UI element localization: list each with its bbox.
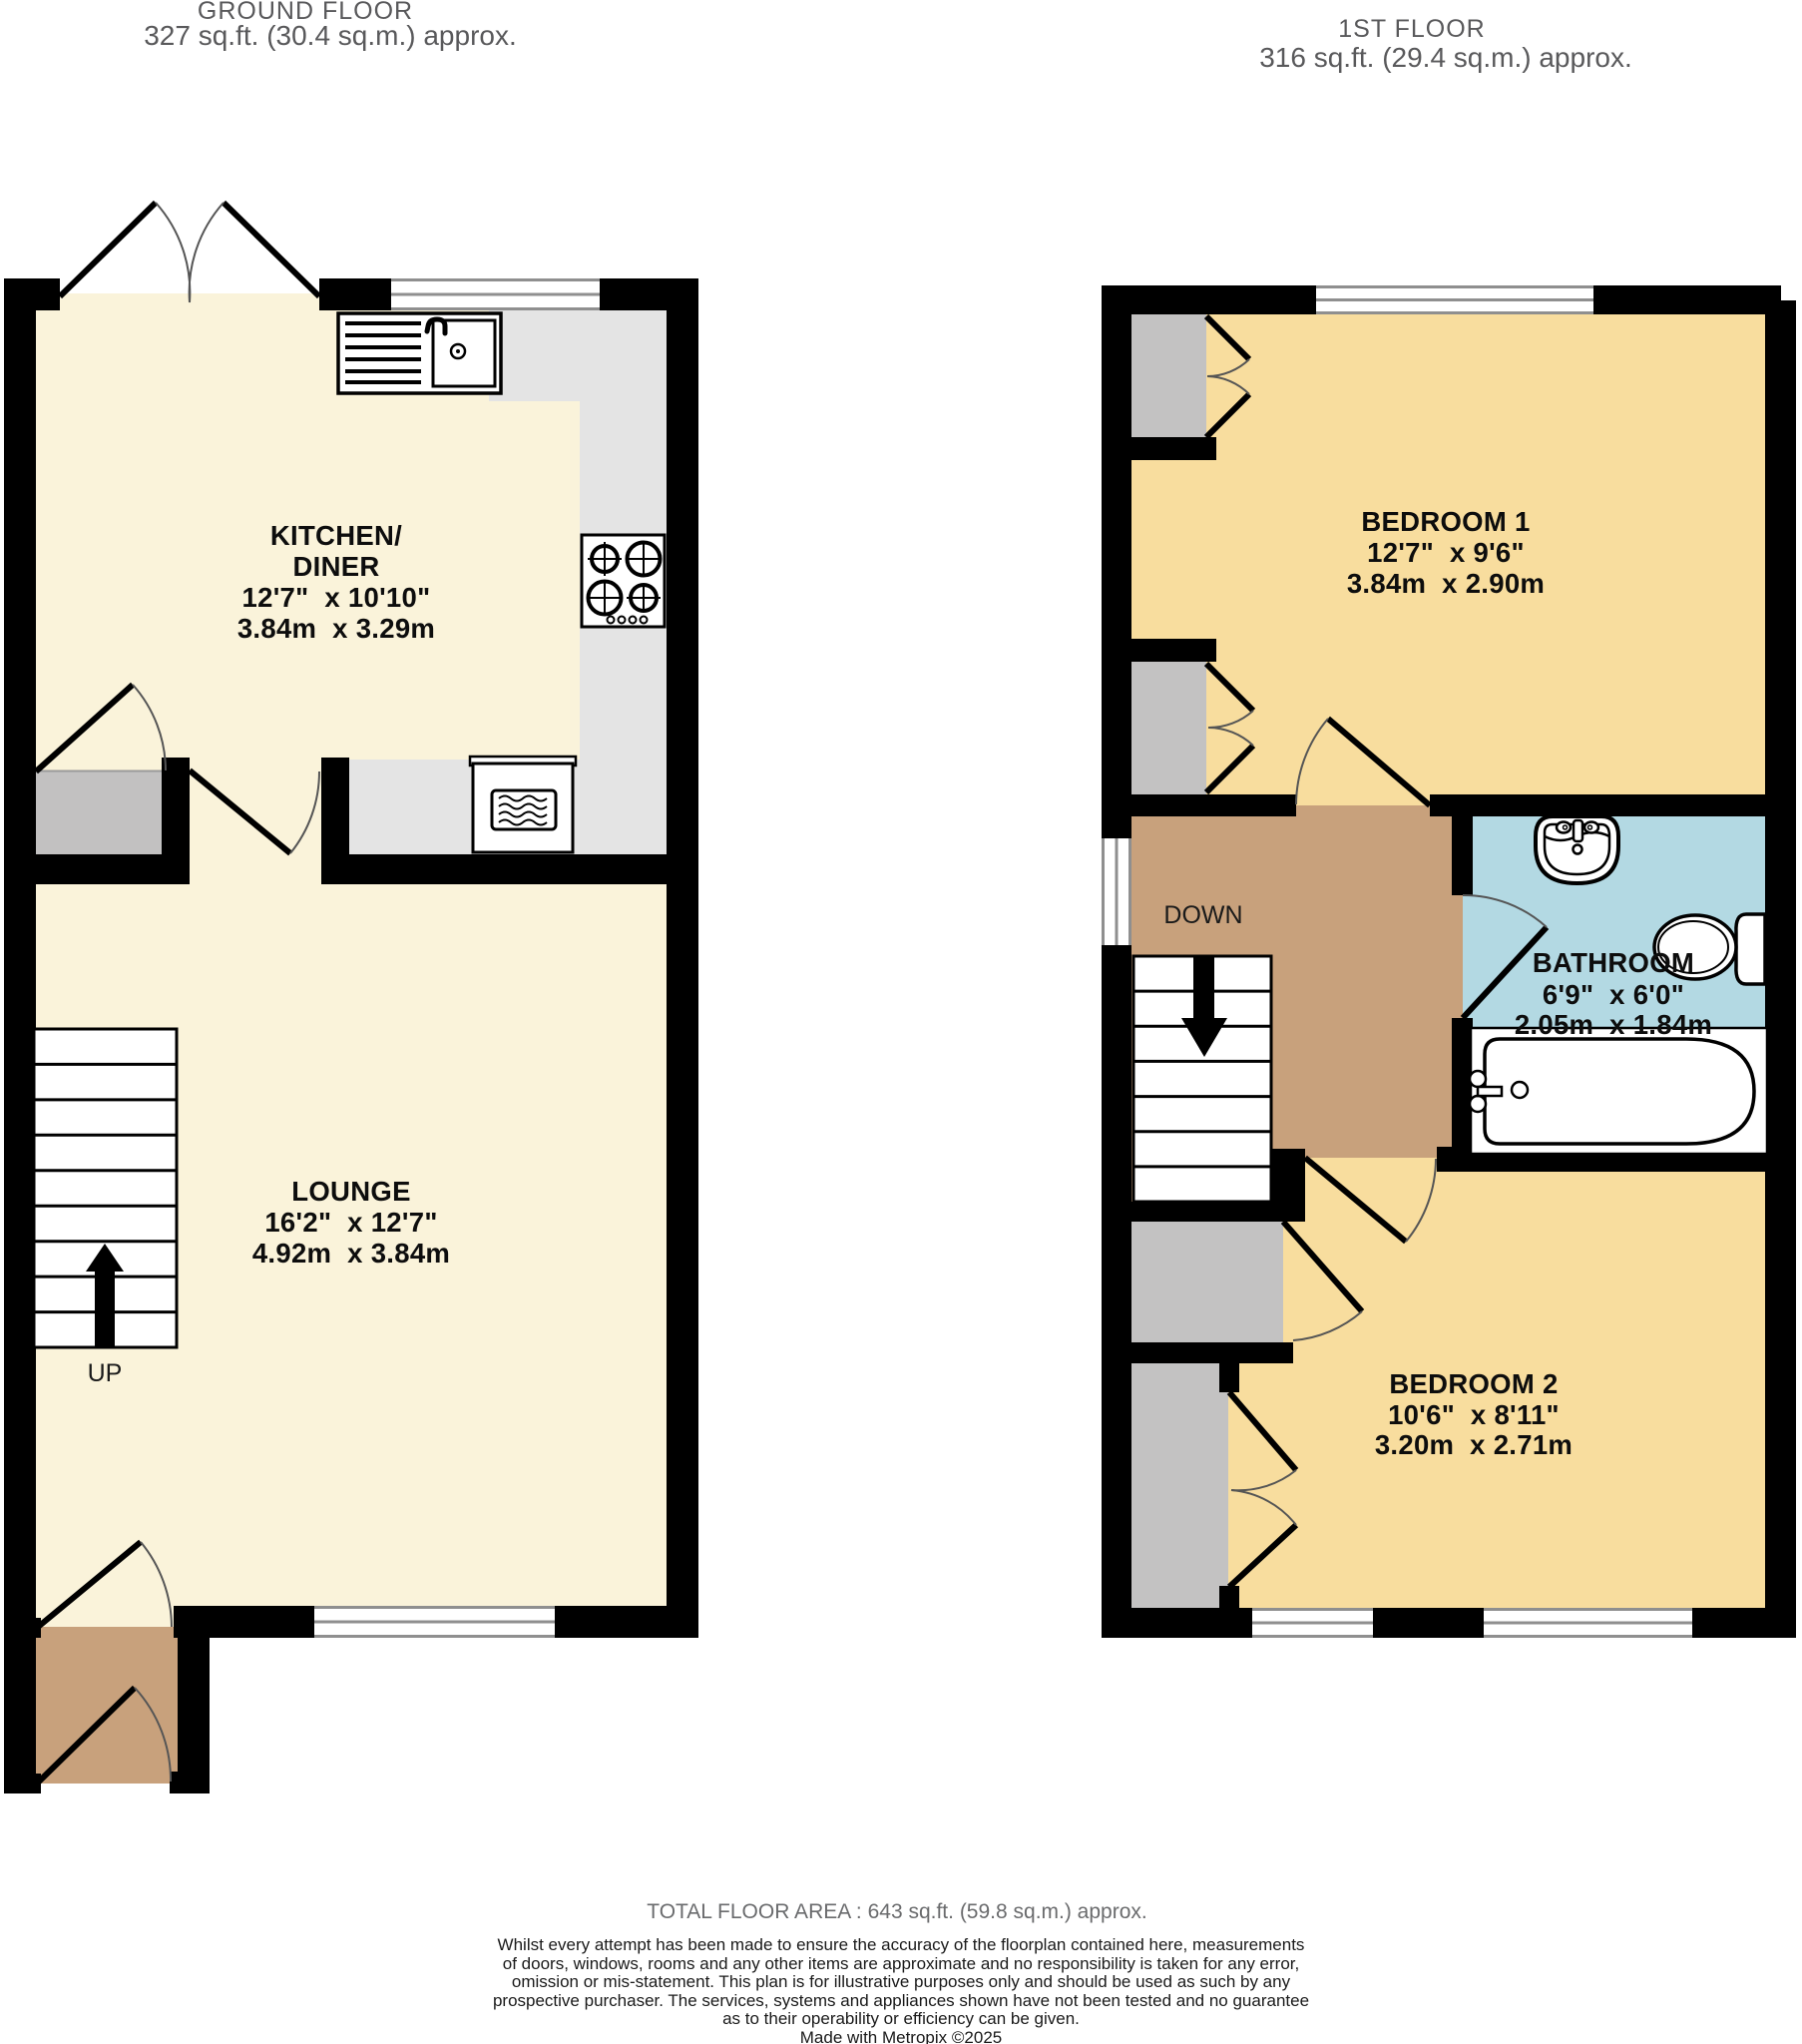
svg-text:UP: UP — [88, 1359, 123, 1387]
svg-text:omission or mis-statement. Thi: omission or mis-statement. This plan is … — [512, 1972, 1291, 1991]
svg-text:Whilst every attempt has been: Whilst every attempt has been made to en… — [498, 1935, 1305, 1954]
svg-text:BATHROOM: BATHROOM — [1533, 947, 1694, 978]
svg-text:12'7" x 9'6": 12'7" x 9'6" — [1367, 537, 1525, 568]
svg-text:4.92m x 3.84m: 4.92m x 3.84m — [252, 1238, 450, 1269]
svg-text:3.84m x 3.29m: 3.84m x 3.29m — [237, 613, 435, 644]
svg-text:DINER: DINER — [292, 551, 379, 582]
svg-text:prospective purchaser. The ser: prospective purchaser. The services, sys… — [493, 1991, 1309, 2010]
svg-text:3.84m x 2.90m: 3.84m x 2.90m — [1347, 568, 1545, 599]
svg-text:of doors, windows, rooms and a: of doors, windows, rooms and any other i… — [503, 1954, 1299, 1973]
svg-text:316 sq.ft. (29.4 sq.m.) approx: 316 sq.ft. (29.4 sq.m.) approx. — [1259, 42, 1632, 73]
svg-text:10'6" x 8'11": 10'6" x 8'11" — [1388, 1399, 1560, 1430]
svg-text:KITCHEN/: KITCHEN/ — [270, 520, 402, 551]
svg-text:1ST FLOOR: 1ST FLOOR — [1338, 15, 1485, 43]
svg-text:12'7" x 10'10": 12'7" x 10'10" — [242, 582, 431, 613]
svg-text:TOTAL FLOOR AREA : 643 sq.ft.: TOTAL FLOOR AREA : 643 sq.ft. (59.8 sq.m… — [647, 1900, 1146, 1923]
svg-text:2.05m x 1.84m: 2.05m x 1.84m — [1515, 1009, 1712, 1040]
svg-text:BEDROOM 2: BEDROOM 2 — [1389, 1368, 1558, 1399]
svg-text:3.20m x 2.71m: 3.20m x 2.71m — [1375, 1429, 1573, 1460]
svg-text:16'2" x 12'7": 16'2" x 12'7" — [264, 1207, 437, 1238]
svg-text:Made with Metropix ©2025: Made with Metropix ©2025 — [800, 2028, 1002, 2044]
svg-text:DOWN: DOWN — [1163, 901, 1242, 929]
svg-text:6'9" x 6'0": 6'9" x 6'0" — [1543, 979, 1684, 1010]
svg-text:327 sq.ft. (30.4 sq.m.) approx: 327 sq.ft. (30.4 sq.m.) approx. — [144, 20, 517, 51]
svg-text:as to their operability or eff: as to their operability or efficiency ca… — [722, 2009, 1080, 2028]
svg-text:BEDROOM 1: BEDROOM 1 — [1361, 506, 1530, 537]
svg-text:LOUNGE: LOUNGE — [291, 1176, 410, 1207]
